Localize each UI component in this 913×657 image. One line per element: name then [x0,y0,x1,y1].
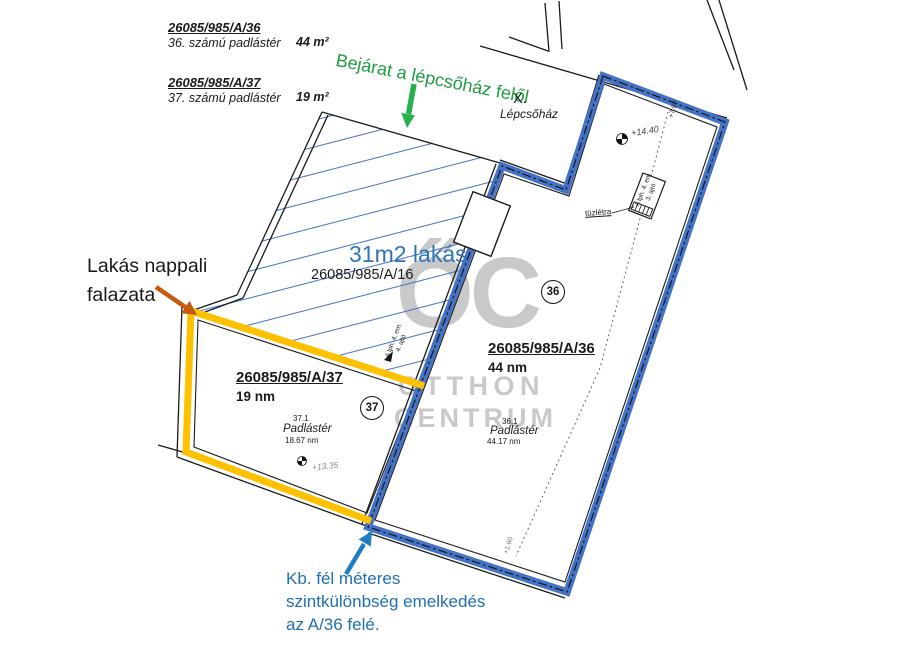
room36-type: Padlástér [490,425,539,437]
parcel36-number-badge: 36 [541,280,565,304]
room36-size: 44.17 nm [487,437,520,446]
legend-parcel36-desc: 36. számú padlástér [168,36,281,50]
level-note-line1: Kb. fél méteres [286,569,400,589]
parcel37-number-badge: 37 [360,396,384,420]
flat16-size-note: 31m2 lakás [349,241,467,268]
floorplan-page: ŐC OTTHON CENTRUM [0,0,913,657]
wall-note-line2: falazata [87,284,155,307]
parcel37-area-label: 19 nm [236,389,275,404]
ladder-label: tüzlétra [585,207,612,218]
stairwell-x-label: X. [513,91,527,107]
legend-parcel37-area: 19 m² [296,90,329,104]
flat16-id-label: 26085/985/A/16 [311,267,413,283]
legend-parcel36-area: 44 m² [296,35,329,49]
wall-note-arrow [156,287,197,315]
entrance-arrow [401,84,415,128]
parcel37-id-label: 26085/985/A/37 [236,369,343,386]
room37-type: Padlástér [283,423,332,435]
wall-note-line1: Lakás nappali [87,255,207,278]
parcel36-id-label: 26085/985/A/36 [488,340,595,357]
stairwell-name-label: Lépcsőház [500,107,558,121]
level-note-arrow [346,531,372,574]
level-note-line3: az A/36 felé. [286,615,380,635]
room37-number: 37.1 [293,414,309,423]
level-symbol-37 [298,457,307,466]
room37-size: 18.67 nm [285,436,318,445]
legend-parcel37-id: 26085/985/A/37 [168,75,261,90]
floorplan-drawing [0,0,913,657]
legend-parcel36-id: 26085/985/A/36 [168,20,261,35]
legend-parcel37-desc: 37. számú padlástér [168,91,281,105]
level-symbol-36 [617,134,628,145]
level-note-line2: szintkülönbség emelkedés [286,592,485,612]
parcel36-area-label: 44 nm [488,360,527,375]
